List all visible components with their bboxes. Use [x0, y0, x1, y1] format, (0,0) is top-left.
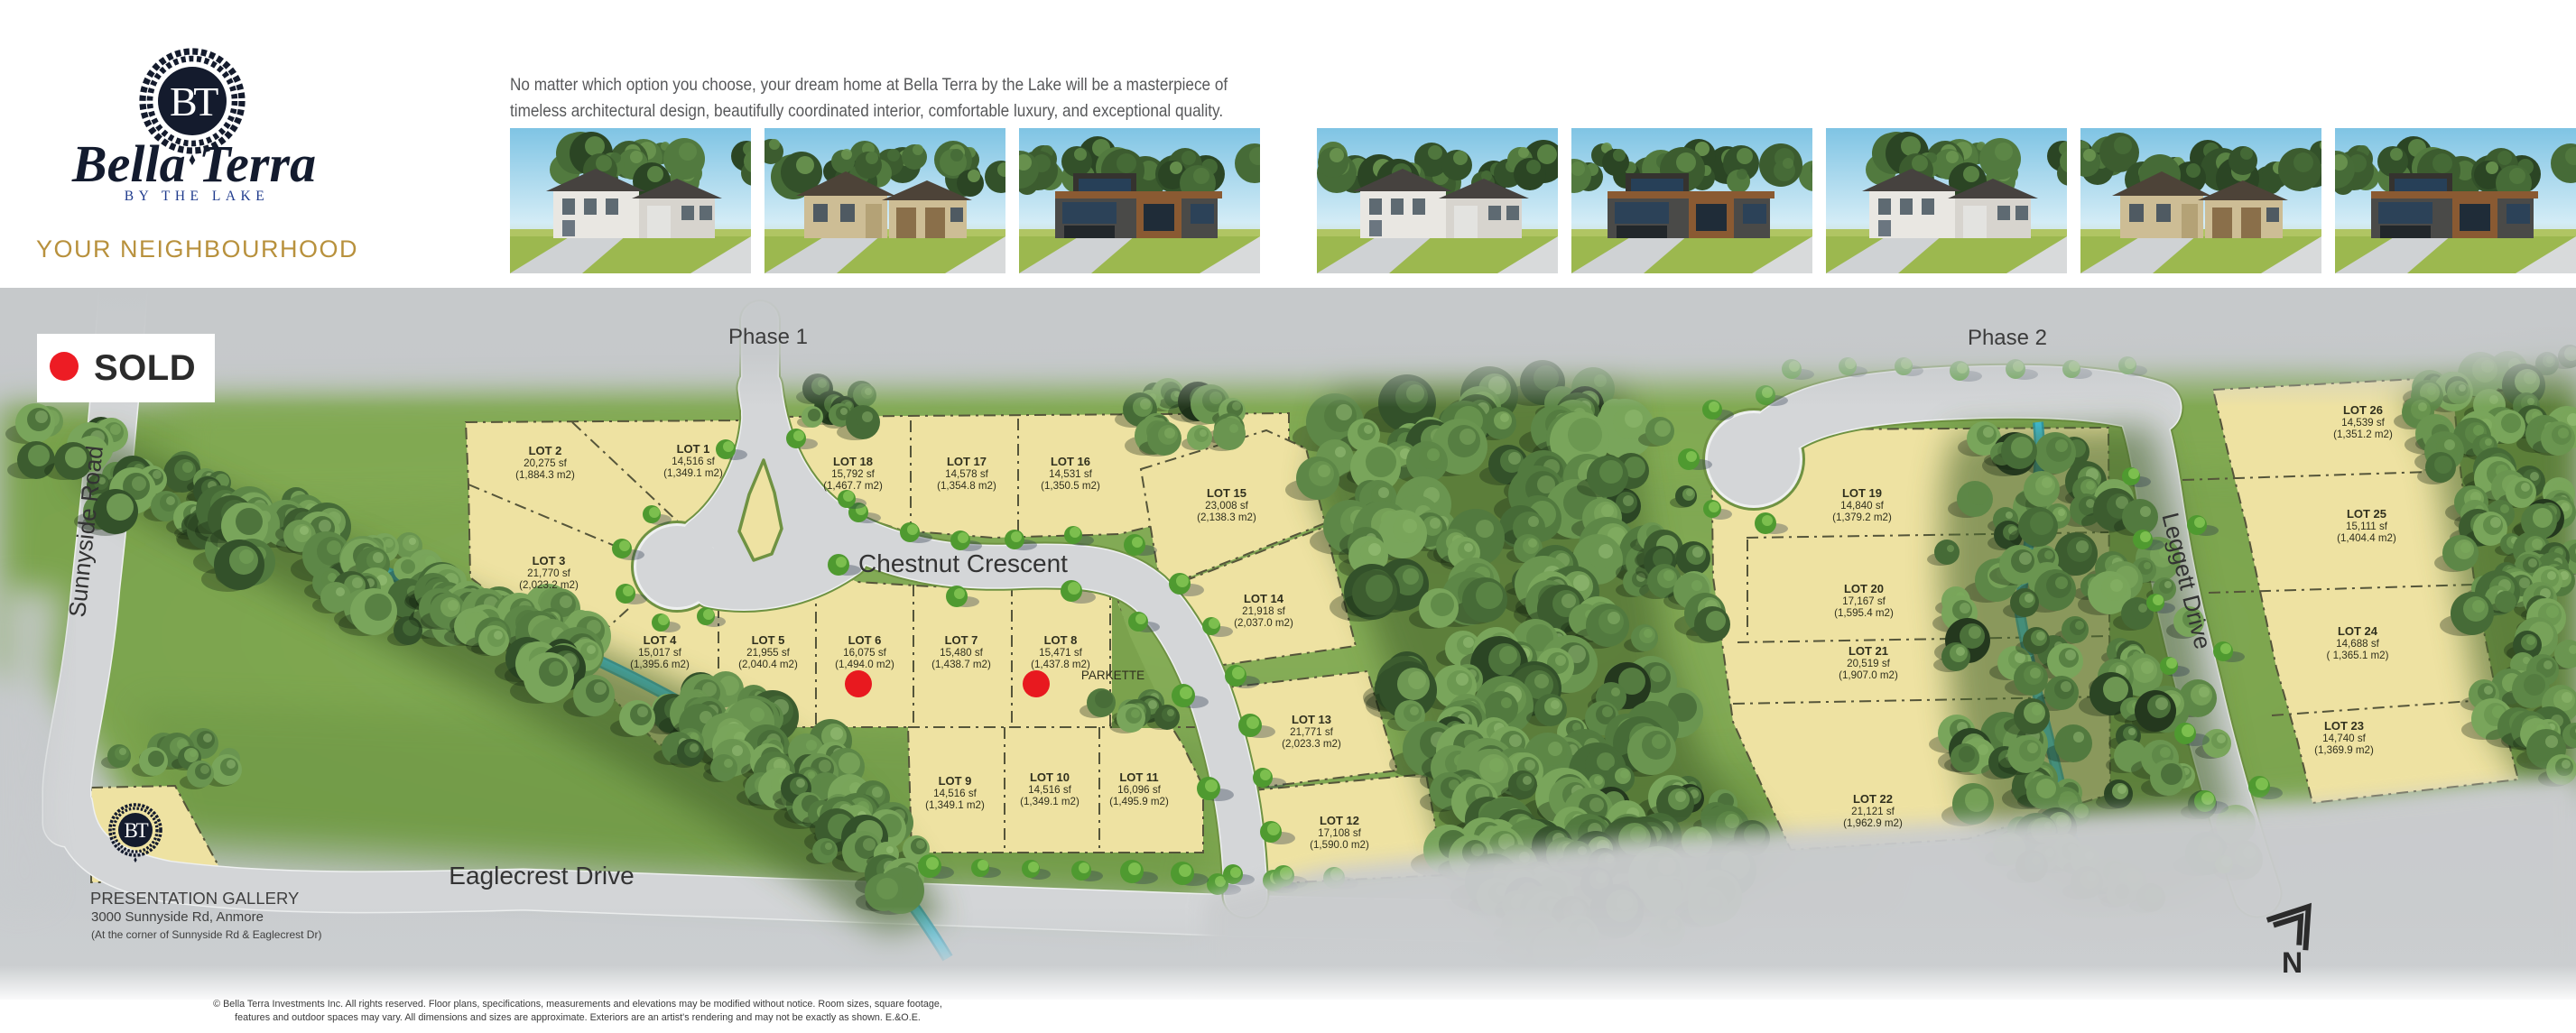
svg-text:LOT 12: LOT 12: [1320, 814, 1359, 827]
svg-text:(2,138.3 m2): (2,138.3 m2): [1197, 512, 1256, 523]
svg-text:(1,467.7 m2): (1,467.7 m2): [823, 480, 883, 492]
svg-text:(1,379.2 m2): (1,379.2 m2): [1832, 512, 1892, 523]
svg-text:(At the corner of Sunnyside Rd: (At the corner of Sunnyside Rd & Eaglecr…: [91, 928, 321, 941]
svg-text:21,771 sf: 21,771 sf: [1290, 726, 1333, 738]
svg-text:14,531 sf: 14,531 sf: [1049, 468, 1092, 480]
svg-text:(1,354.8 m2): (1,354.8 m2): [937, 480, 996, 492]
svg-text:LOT 16: LOT 16: [1051, 455, 1090, 468]
svg-text:(1,404.4 m2): (1,404.4 m2): [2337, 532, 2396, 544]
svg-text:LOT 8: LOT 8: [1044, 633, 1078, 647]
svg-text:Phase 1: Phase 1: [728, 325, 808, 349]
svg-text:SOLD: SOLD: [94, 348, 196, 388]
svg-text:LOT 2: LOT 2: [529, 444, 562, 457]
svg-text:23,008 sf: 23,008 sf: [1205, 500, 1248, 512]
svg-text:14,516 sf: 14,516 sf: [1028, 784, 1071, 796]
svg-text:15,792 sf: 15,792 sf: [831, 468, 875, 480]
svg-text:16,075 sf: 16,075 sf: [843, 647, 886, 659]
svg-text:20,519 sf: 20,519 sf: [1847, 658, 1890, 669]
svg-text:LOT 22: LOT 22: [1853, 792, 1893, 806]
svg-text:LOT 9: LOT 9: [939, 774, 972, 788]
svg-text:14,539 sf: 14,539 sf: [2341, 417, 2385, 429]
svg-text:(1,349.1 m2): (1,349.1 m2): [1020, 796, 1080, 807]
svg-text:LOT 17: LOT 17: [947, 455, 987, 468]
svg-text:LOT 3: LOT 3: [533, 554, 566, 567]
svg-text:(1,369.9 m2): (1,369.9 m2): [2314, 744, 2374, 756]
svg-text:LOT 10: LOT 10: [1030, 770, 1070, 784]
svg-text:3000 Sunnyside Rd, Anmore: 3000 Sunnyside Rd, Anmore: [91, 909, 264, 925]
svg-text:14,688 sf: 14,688 sf: [2336, 638, 2379, 650]
svg-text:21,955 sf: 21,955 sf: [746, 647, 790, 659]
svg-text:( 1,365.1 m2): ( 1,365.1 m2): [2327, 650, 2389, 661]
svg-text:14,740 sf: 14,740 sf: [2322, 733, 2366, 744]
svg-text:LOT 24: LOT 24: [2338, 624, 2378, 638]
svg-text:(1,349.1 m2): (1,349.1 m2): [663, 467, 723, 479]
svg-text:LOT 21: LOT 21: [1849, 644, 1888, 658]
svg-text:21,918 sf: 21,918 sf: [1242, 605, 1285, 617]
svg-text:(2,023.3 m2): (2,023.3 m2): [1282, 738, 1341, 750]
svg-text:(1,494.0 m2): (1,494.0 m2): [835, 659, 894, 670]
svg-text:(1,350.5 m2): (1,350.5 m2): [1041, 480, 1100, 492]
svg-text:(1,349.1 m2): (1,349.1 m2): [925, 799, 985, 811]
svg-text:LOT 25: LOT 25: [2347, 507, 2386, 521]
svg-text:LOT 4: LOT 4: [644, 633, 678, 647]
svg-text:LOT 15: LOT 15: [1207, 486, 1246, 500]
svg-text:© Bella Terra Investments Inc.: © Bella Terra Investments Inc. All right…: [213, 999, 942, 1010]
svg-text:(2,023.2 m2): (2,023.2 m2): [519, 579, 579, 591]
svg-text:BT: BT: [170, 78, 218, 125]
svg-text:14,578 sf: 14,578 sf: [945, 468, 988, 480]
svg-text:15,471 sf: 15,471 sf: [1039, 647, 1082, 659]
svg-text:(1,495.9 m2): (1,495.9 m2): [1109, 796, 1169, 807]
svg-text:14,516 sf: 14,516 sf: [933, 788, 977, 799]
svg-text:(1,907.0 m2): (1,907.0 m2): [1839, 669, 1898, 681]
svg-text:Phase 2: Phase 2: [1968, 326, 2047, 350]
svg-text:LOT 26: LOT 26: [2343, 403, 2383, 417]
svg-text:(1,351.2 m2): (1,351.2 m2): [2333, 429, 2393, 440]
svg-text:LOT 14: LOT 14: [1244, 592, 1284, 605]
svg-text:LOT 1: LOT 1: [677, 442, 710, 456]
svg-text:Chestnut Crescent: Chestnut Crescent: [858, 549, 1068, 577]
svg-text:PRESENTATION GALLERY: PRESENTATION GALLERY: [90, 889, 299, 908]
svg-text:(1,590.0 m2): (1,590.0 m2): [1310, 839, 1369, 851]
svg-text:(1,962.9 m2): (1,962.9 m2): [1843, 817, 1903, 829]
svg-text:LOT 6: LOT 6: [848, 633, 882, 647]
svg-text:15,017 sf: 15,017 sf: [638, 647, 681, 659]
svg-text:BT: BT: [125, 819, 149, 842]
svg-text:LOT 20: LOT 20: [1844, 582, 1884, 595]
svg-text:14,516 sf: 14,516 sf: [672, 456, 715, 467]
svg-text:(1,595.4 m2): (1,595.4 m2): [1834, 607, 1894, 619]
svg-text:(1,437.8 m2): (1,437.8 m2): [1031, 659, 1090, 670]
svg-text:17,108 sf: 17,108 sf: [1318, 827, 1361, 839]
svg-text:15,111 sf: 15,111 sf: [2346, 521, 2388, 532]
svg-text:20,275 sf: 20,275 sf: [524, 457, 567, 469]
svg-text:21,770 sf: 21,770 sf: [527, 567, 570, 579]
svg-text:14,840 sf: 14,840 sf: [1840, 500, 1884, 512]
svg-text:21,121 sf: 21,121 sf: [1851, 806, 1895, 817]
svg-text:LOT 18: LOT 18: [833, 455, 873, 468]
svg-text:16,096 sf: 16,096 sf: [1117, 784, 1161, 796]
svg-text:15,480 sf: 15,480 sf: [940, 647, 983, 659]
svg-text:Eaglecrest Drive: Eaglecrest Drive: [449, 862, 634, 890]
svg-text:N: N: [2282, 946, 2303, 979]
svg-text:(2,037.0 m2): (2,037.0 m2): [1234, 617, 1293, 629]
svg-text:LOT 23: LOT 23: [2324, 719, 2364, 733]
svg-text:LOT 11: LOT 11: [1119, 770, 1158, 784]
svg-text:features and outdoor spaces ma: features and outdoor spaces may vary. Al…: [235, 1012, 921, 1023]
svg-text:(1,438.7 m2): (1,438.7 m2): [931, 659, 991, 670]
svg-text:LOT 13: LOT 13: [1292, 713, 1331, 726]
svg-text:(2,040.4 m2): (2,040.4 m2): [738, 659, 798, 670]
svg-text:(1,395.6 m2): (1,395.6 m2): [630, 659, 690, 670]
svg-text:LOT 7: LOT 7: [945, 633, 978, 647]
svg-text:PARKETTE: PARKETTE: [1081, 669, 1144, 682]
svg-text:17,167 sf: 17,167 sf: [1842, 595, 1886, 607]
svg-text:(1,884.3 m2): (1,884.3 m2): [515, 469, 575, 481]
svg-text:LOT 5: LOT 5: [752, 633, 785, 647]
svg-text:LOT 19: LOT 19: [1842, 486, 1882, 500]
